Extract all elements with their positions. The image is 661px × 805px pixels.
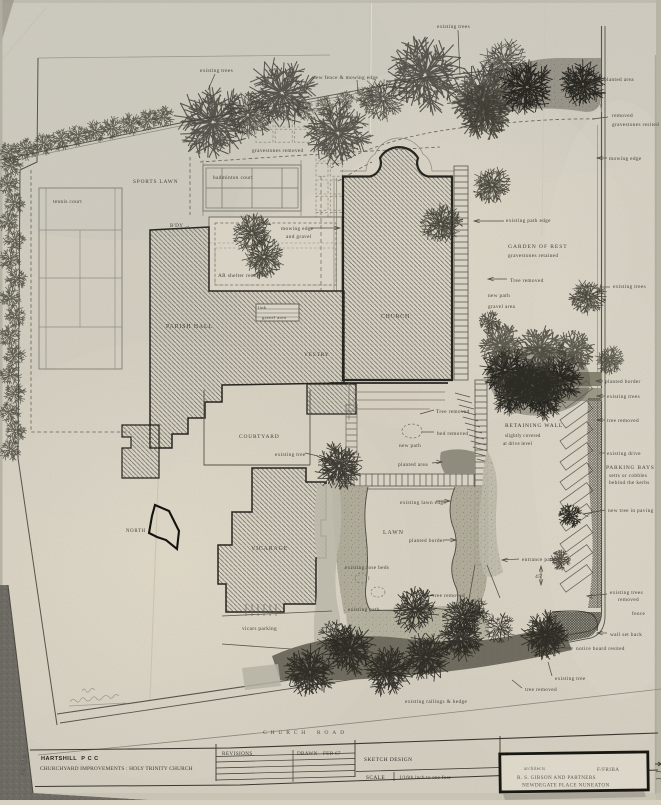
svg-text:gravestones resited: gravestones resited xyxy=(612,122,659,128)
svg-text:existing trees: existing trees xyxy=(607,394,640,400)
svg-text:entrance path: entrance path xyxy=(522,557,555,563)
svg-text:REVISIONS: REVISIONS xyxy=(222,751,253,757)
svg-text:removed: removed xyxy=(618,597,639,603)
svg-text:GARDEN OF REST: GARDEN OF REST xyxy=(508,244,568,250)
svg-text:tennis court: tennis court xyxy=(53,199,82,205)
svg-text:CHURCH: CHURCH xyxy=(381,314,410,320)
svg-text:existing trees: existing trees xyxy=(613,284,646,290)
svg-text:SKETCH DESIGN: SKETCH DESIGN xyxy=(364,757,413,763)
svg-text:VESTRY: VESTRY xyxy=(304,352,329,358)
svg-text:Tree removed: Tree removed xyxy=(436,409,470,415)
svg-text:wall set back: wall set back xyxy=(610,632,642,638)
svg-text:R. S. GIBSON AND PARTNERS: R. S. GIBSON AND PARTNERS xyxy=(517,775,596,781)
svg-text:CHURCHYARD IMPROVEMENTS : HOLY: CHURCHYARD IMPROVEMENTS : HOLY TRINITY C… xyxy=(40,766,193,772)
svg-text:PARISH HALL: PARISH HALL xyxy=(166,324,213,330)
svg-text:slightly covered: slightly covered xyxy=(505,434,541,439)
svg-text:HARTSHILL P C C: HARTSHILL P C C xyxy=(41,756,99,762)
svg-text:and gravel: and gravel xyxy=(286,234,312,240)
svg-text:SPORTS LAWN: SPORTS LAWN xyxy=(133,179,178,185)
svg-text:mowing edge: mowing edge xyxy=(281,226,314,232)
svg-text:F/FRIBA: F/FRIBA xyxy=(597,767,619,773)
svg-text:RETAINING WALL: RETAINING WALL xyxy=(505,423,563,429)
svg-text:45': 45' xyxy=(535,574,543,580)
svg-text:existing lawn edge: existing lawn edge xyxy=(400,500,446,506)
svg-text:COURTYARD: COURTYARD xyxy=(239,434,280,440)
svg-text:tree removed: tree removed xyxy=(433,593,465,599)
svg-text:new path: new path xyxy=(399,443,421,449)
svg-text:planted area: planted area xyxy=(604,77,634,83)
svg-text:1/16th inch to one foot: 1/16th inch to one foot xyxy=(399,774,451,781)
svg-text:gravestones retained: gravestones retained xyxy=(508,253,558,259)
svg-text:removed: removed xyxy=(612,113,633,119)
svg-text:B'DY →: B'DY → xyxy=(170,223,190,229)
svg-text:behind the kerbs: behind the kerbs xyxy=(609,480,650,486)
svg-text:tree removed: tree removed xyxy=(607,418,639,424)
svg-text:setts or cobbles: setts or cobbles xyxy=(609,473,647,479)
svg-text:planted border: planted border xyxy=(605,379,641,385)
svg-text:Tree removed: Tree removed xyxy=(510,278,544,284)
svg-text:existing path edge: existing path edge xyxy=(506,218,551,224)
svg-text:existing tree: existing tree xyxy=(555,676,586,682)
svg-text:C H U R C H R O A D: C H U R C H R O A D xyxy=(263,730,345,736)
svg-text:bed removed: bed removed xyxy=(437,431,468,437)
svg-text:fence: fence xyxy=(632,610,646,617)
svg-text:mowing edge: mowing edge xyxy=(609,156,642,162)
svg-text:gravestones removed: gravestones removed xyxy=(252,148,304,154)
svg-text:existing drive: existing drive xyxy=(607,451,641,457)
svg-text:notice board resited: notice board resited xyxy=(576,646,625,652)
svg-text:planted area: planted area xyxy=(398,462,428,468)
svg-text:AR shelter removed: AR shelter removed xyxy=(218,273,267,279)
svg-text:badminton court: badminton court xyxy=(213,175,253,181)
svg-text:vicars parking: vicars parking xyxy=(242,626,277,632)
svg-text:existing tree: existing tree xyxy=(275,452,306,458)
svg-text:gravel area: gravel area xyxy=(488,304,516,310)
svg-text:new fence & mowing edge: new fence & mowing edge xyxy=(313,74,378,81)
svg-text:SCALE: SCALE xyxy=(366,775,385,781)
svg-text:existing trees: existing trees xyxy=(610,590,643,596)
svg-text:PARKING BAYS: PARKING BAYS xyxy=(606,465,655,471)
svg-text:existing trees: existing trees xyxy=(200,68,233,74)
svg-text:VICARAGE: VICARAGE xyxy=(251,546,288,552)
svg-text:existing path: existing path xyxy=(348,607,380,613)
svg-text:LAWN: LAWN xyxy=(383,530,404,536)
svg-text:railings: railings xyxy=(460,644,480,650)
svg-text:existing rose beds: existing rose beds xyxy=(345,565,389,571)
svg-text:tree removed: tree removed xyxy=(525,687,557,693)
svg-text:new tree in paving: new tree in paving xyxy=(608,508,654,514)
svg-text:link: link xyxy=(258,305,267,310)
svg-text:at drive level: at drive level xyxy=(503,442,533,447)
svg-text:new path: new path xyxy=(488,293,510,299)
svg-text:planted border: planted border xyxy=(409,538,445,544)
svg-text:existing trees: existing trees xyxy=(437,24,470,30)
svg-text:NEWDEGATE PLACE NUNEATON: NEWDEGATE PLACE NUNEATON xyxy=(522,783,610,789)
svg-text:FEB 67: FEB 67 xyxy=(323,751,341,757)
svg-text:DRAWN: DRAWN xyxy=(297,751,318,757)
svg-text:architects: architects xyxy=(524,767,545,772)
svg-text:gravel area: gravel area xyxy=(262,315,286,320)
svg-text:existing railings & hedge: existing railings & hedge xyxy=(405,699,467,705)
svg-text:NORTH: NORTH xyxy=(126,529,146,534)
